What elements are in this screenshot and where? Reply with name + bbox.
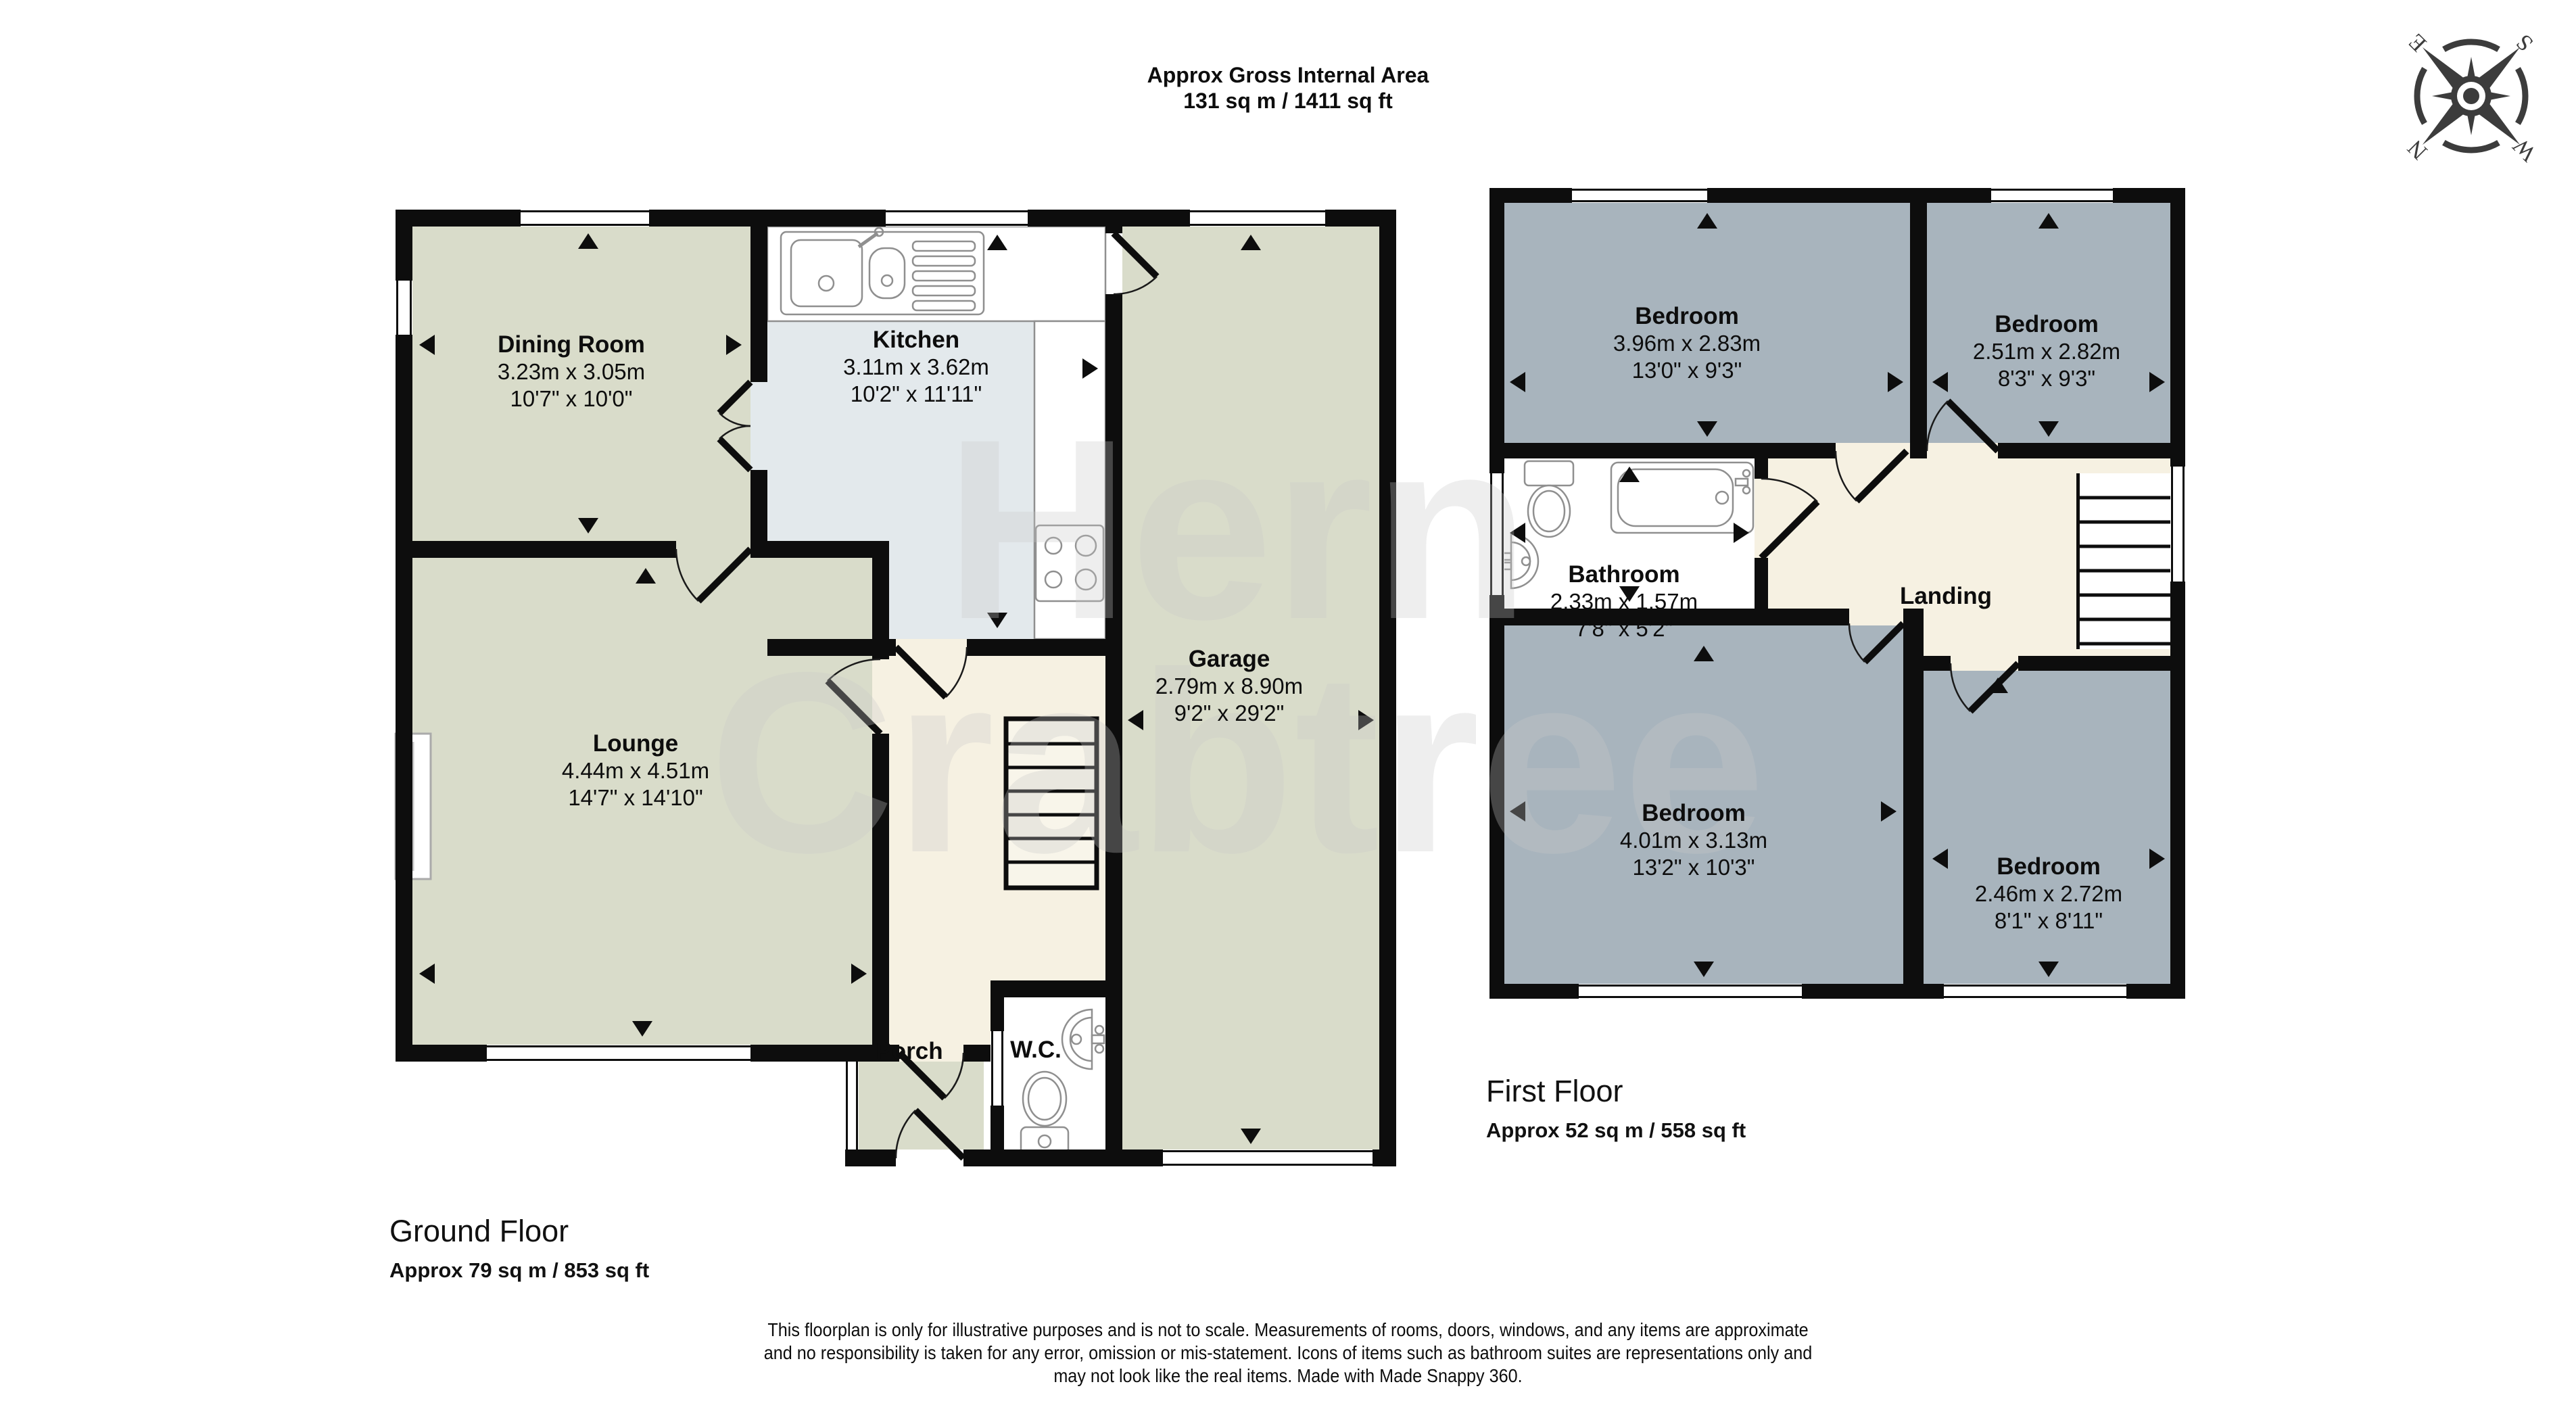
room-size-imperial: 9'2" x 29'2" (1060, 700, 1398, 727)
page-title: Approx Gross Internal Area 131 sq m / 14… (1147, 62, 1429, 114)
room-name: W.C. (867, 1037, 1205, 1064)
stove-icon (1036, 525, 1103, 601)
floor-area: Approx 79 sq m / 853 sq ft (389, 1258, 649, 1283)
room-size-metric: 4.01m x 3.13m (1525, 827, 1863, 854)
room-size-metric: 2.51m x 2.82m (1878, 338, 2216, 365)
floor-name: First Floor (1486, 1074, 1746, 1109)
lounge-label: Lounge 4.44m x 4.51m 14'7" x 14'10" (467, 730, 805, 811)
bathroom-label: Bathroom 2.33m x 1.57m 7'8" x 5'2" (1455, 561, 1793, 642)
first-floor-stairs (2076, 473, 2170, 649)
wc-toilet-icon (1021, 1072, 1068, 1156)
floor-name: Ground Floor (389, 1214, 649, 1249)
room-size-metric: 2.79m x 8.90m (1060, 673, 1398, 700)
room-size-imperial: 13'0" x 9'3" (1518, 357, 1856, 384)
bedroom1-label: Bedroom 3.96m x 2.83m 13'0" x 9'3" (1518, 303, 1856, 384)
bedroom2-label: Bedroom 2.51m x 2.82m 8'3" x 9'3" (1878, 311, 2216, 392)
room-size-imperial: 8'1" x 8'11" (1880, 907, 2218, 934)
dining-room-label: Dining Room 3.23m x 3.05m 10'7" x 10'0" (402, 331, 740, 412)
room-size-imperial: 13'2" x 10'3" (1525, 854, 1863, 881)
room-name: Landing (1777, 583, 2115, 610)
room-size-imperial: 14'7" x 14'10" (467, 784, 805, 811)
room-name: Bedroom (1525, 800, 1863, 827)
room-size-metric: 2.33m x 1.57m (1455, 588, 1793, 615)
room-size-metric: 3.23m x 3.05m (402, 358, 740, 385)
wc-label: W.C. (867, 1037, 1205, 1064)
room-name: Bedroom (1880, 853, 2218, 880)
ground-floor-caption: Ground Floor Approx 79 sq m / 853 sq ft (389, 1214, 649, 1283)
bedroom4-label: Bedroom 2.46m x 2.72m 8'1" x 8'11" (1880, 853, 2218, 934)
floor-area: Approx 52 sq m / 558 sq ft (1486, 1118, 1746, 1143)
room-name: Garage (1060, 646, 1398, 673)
floorplan-page: Approx Gross Internal Area 131 sq m / 14… (0, 0, 2576, 1422)
garage-label: Garage 2.79m x 8.90m 9'2" x 29'2" (1060, 646, 1398, 727)
first-floor-caption: First Floor Approx 52 sq m / 558 sq ft (1486, 1074, 1746, 1143)
room-name: Bedroom (1878, 311, 2216, 338)
room-size-imperial: 10'2" x 11'11" (747, 381, 1085, 408)
landing-label: Landing (1777, 583, 2115, 610)
room-name: Bedroom (1518, 303, 1856, 330)
gross-area-title: Approx Gross Internal Area (1147, 62, 1429, 88)
room-size-metric: 3.11m x 3.62m (747, 354, 1085, 381)
gross-area-value: 131 sq m / 1411 sq ft (1147, 88, 1429, 114)
kitchen-label: Kitchen 3.11m x 3.62m 10'2" x 11'11" (747, 327, 1085, 408)
bedroom3-label: Bedroom 4.01m x 3.13m 13'2" x 10'3" (1525, 800, 1863, 881)
compass-icon: N E S W (2390, 15, 2552, 177)
kitchen-sink-icon (781, 228, 984, 314)
room-name: Dining Room (402, 331, 740, 358)
disclaimer-line1: This floorplan is only for illustrative … (588, 1319, 1988, 1342)
room-size-imperial: 7'8" x 5'2" (1455, 615, 1793, 642)
disclaimer-line2: and no responsibility is taken for any e… (588, 1342, 1988, 1365)
compass-rose: N E S W (2390, 15, 2552, 177)
room-name: Kitchen (747, 327, 1085, 354)
ground-stairs (1006, 719, 1097, 888)
room-size-metric: 2.46m x 2.72m (1880, 880, 2218, 907)
disclaimer-line3: may not look like the real items. Made w… (588, 1365, 1988, 1388)
room-size-imperial: 8'3" x 9'3" (1878, 365, 2216, 392)
room-name: Bathroom (1455, 561, 1793, 588)
room-size-metric: 4.44m x 4.51m (467, 757, 805, 784)
disclaimer: This floorplan is only for illustrative … (588, 1319, 1988, 1388)
room-name: Lounge (467, 730, 805, 757)
bathroom-toilet-icon (1525, 461, 1573, 537)
room-size-metric: 3.96m x 2.83m (1518, 330, 1856, 357)
room-size-imperial: 10'7" x 10'0" (402, 385, 740, 412)
